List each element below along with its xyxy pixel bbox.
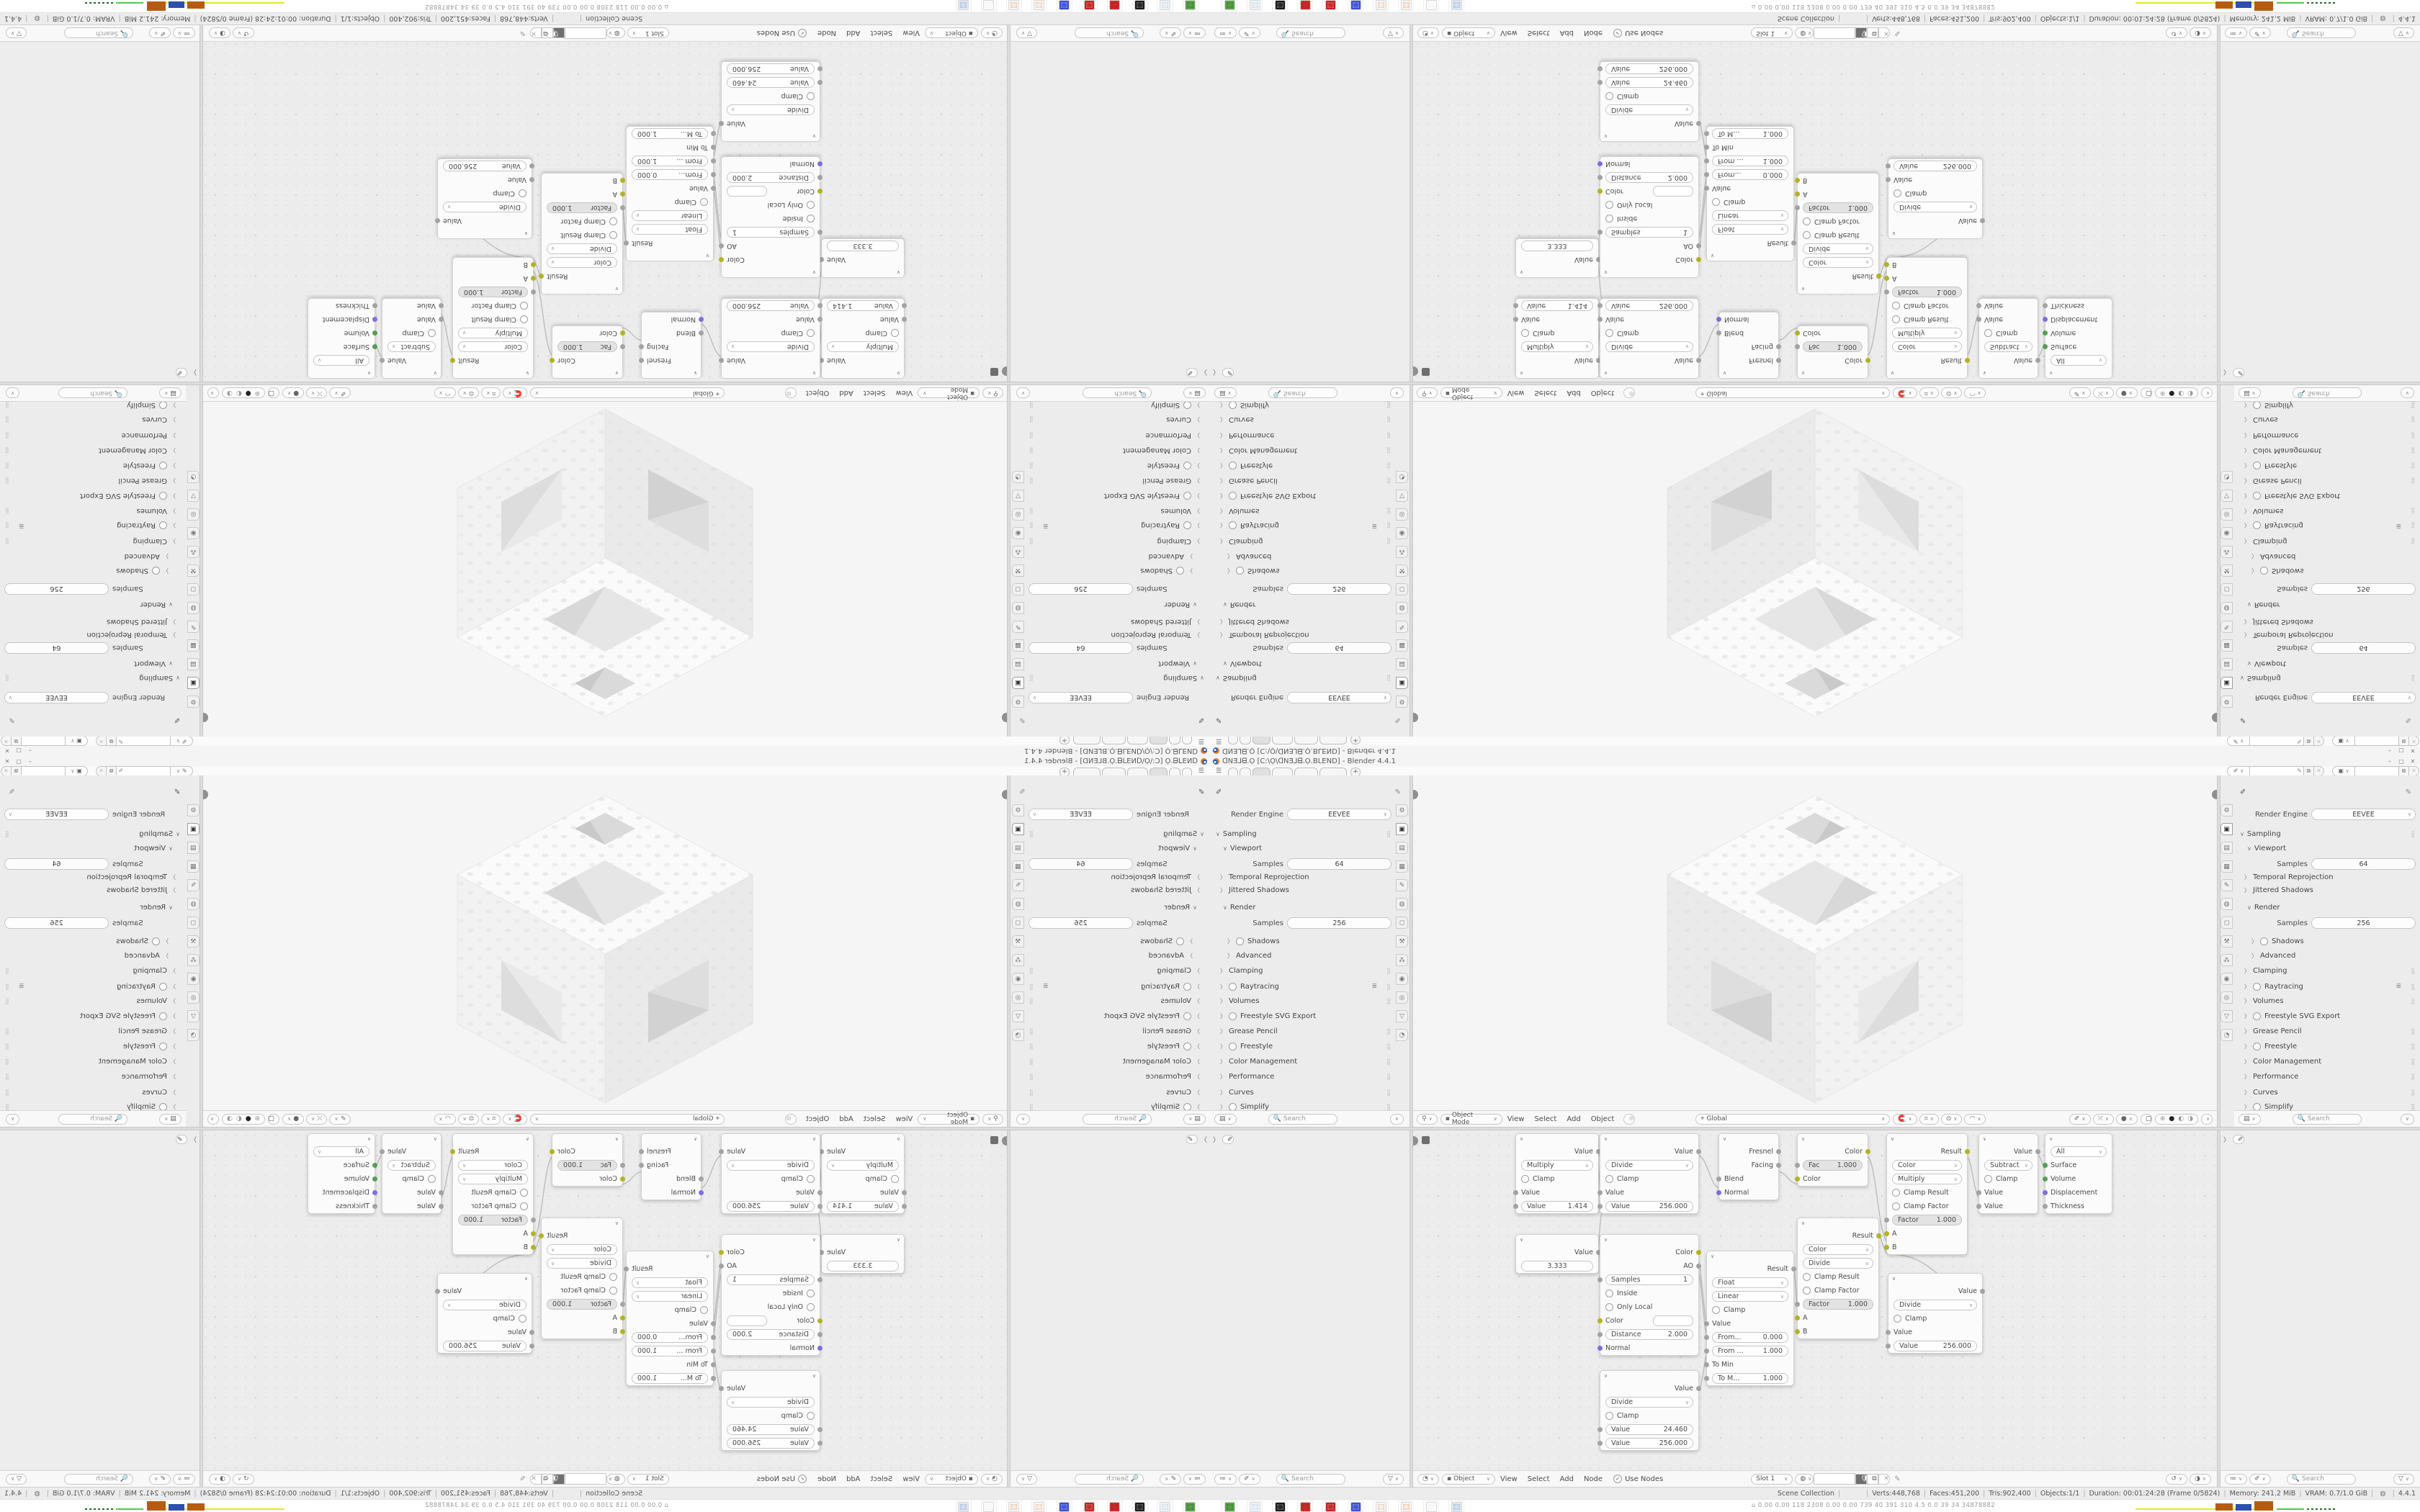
slot-select[interactable]: Slot 1∨: [1751, 28, 1793, 39]
input-socket[interactable]: [531, 263, 536, 268]
search-input[interactable]: 🔍Search: [64, 1474, 133, 1485]
node-checkbox-clamp[interactable]: Clamp: [1600, 1409, 1698, 1423]
output-socket[interactable]: [1696, 1149, 1701, 1154]
area-splitter[interactable]: [200, 1130, 203, 1487]
outliner-mode-button[interactable]: ≔∨: [2225, 1474, 2247, 1485]
output-socket[interactable]: [719, 258, 724, 263]
node-collapse-icon[interactable]: ∨: [1723, 370, 1726, 376]
node-enum-color[interactable]: Color∨: [458, 1160, 528, 1171]
output-tab-icon[interactable]: ▤: [2220, 842, 2233, 854]
properties-row-advanced[interactable]: 〉Advanced: [1210, 551, 1396, 562]
node-checkbox-clamp-result[interactable]: Clamp Result: [1798, 228, 1878, 242]
shader-node-editor[interactable]: ∨ValueMultiply∨ClampValueValue1.414∨Valu…: [203, 25, 1007, 382]
shading-mode-1[interactable]: ●: [2169, 390, 2174, 397]
viewport-menu-select[interactable]: Select: [1534, 390, 1556, 397]
input-socket[interactable]: [1795, 179, 1800, 184]
node-collapse-icon[interactable]: ∨: [1801, 286, 1805, 292]
minimize-button[interactable]: –: [2385, 747, 2395, 755]
filter-button[interactable]: ▽∨: [1383, 28, 1404, 39]
node-header-tool-0[interactable]: ↺∨: [233, 28, 254, 39]
node-checkbox-clamp[interactable]: Clamp: [1888, 186, 1982, 200]
panel-collapse-handle-left[interactable]: [1002, 790, 1007, 799]
shader-node-ambient-occlusion[interactable]: ∨ColorAOSamples1InsideOnly LocalColorDis…: [721, 156, 820, 278]
constraints-tab-icon[interactable]: ◎: [2220, 508, 2233, 521]
filter-button[interactable]: ▽∨: [1383, 1474, 1404, 1485]
expand-chevron-icon[interactable]: 〉: [1201, 1135, 1207, 1144]
node-menu-select[interactable]: Select: [870, 30, 892, 37]
tool-tab-icon[interactable]: ⚙: [187, 696, 200, 708]
properties-row-advanced[interactable]: 〉Advanced: [0, 950, 186, 961]
brush-filter-button[interactable]: ✐∨: [1160, 1474, 1181, 1485]
modifiers-tab-icon[interactable]: ⚒: [2220, 564, 2233, 577]
particles-tab-icon[interactable]: ⁂: [187, 954, 200, 966]
copy-icon[interactable]: ⧉: [106, 766, 116, 776]
properties-row-shadows[interactable]: 〉Shadows: [2234, 935, 2420, 947]
snap-tool-1[interactable]: ⌗∨: [481, 1114, 501, 1125]
node-value-field[interactable]: Value24.460: [1605, 1424, 1693, 1435]
properties-row-clamping[interactable]: 〉Clamping⣿: [1210, 965, 1396, 976]
fake-user-button[interactable]: 🛡: [1855, 28, 1867, 39]
close-button[interactable]: ✕: [2408, 747, 2418, 755]
output-socket[interactable]: [435, 1289, 440, 1294]
color-swatch[interactable]: [727, 1315, 767, 1326]
snap-tool-1[interactable]: ⌗∨: [481, 388, 501, 399]
shading-mode-0[interactable]: ⊕: [255, 1115, 261, 1122]
node-collapse-icon[interactable]: ∨: [524, 1276, 528, 1282]
particles-tab-icon[interactable]: ⁂: [187, 546, 200, 558]
node-collapse-icon[interactable]: ∨: [1520, 269, 1523, 275]
output-socket[interactable]: [719, 1386, 724, 1391]
area-splitter[interactable]: [200, 775, 203, 1127]
taskbar-ghost-app-icon[interactable]: [981, 1500, 997, 1512]
unlink-icon[interactable]: ✕: [2409, 736, 2419, 746]
input-socket[interactable]: [1886, 1330, 1891, 1335]
editor-type-button[interactable]: ⚲∨: [982, 388, 1003, 399]
search-input[interactable]: 🔍Search: [58, 388, 127, 399]
modifiers-tab-icon[interactable]: ⚒: [1012, 564, 1024, 577]
tool-tab-icon[interactable]: ⚙: [1396, 804, 1408, 816]
shader-node-math-divide-a[interactable]: ∨ValueDivide∨ClampValueValue256.000: [721, 298, 820, 379]
output-socket[interactable]: [1776, 1149, 1781, 1154]
node-checkbox-clamp[interactable]: Clamp: [438, 1312, 532, 1326]
brush-icon[interactable]: ✐: [1222, 368, 1234, 377]
output-tab-icon[interactable]: ▤: [187, 842, 200, 854]
unlink-button[interactable]: ✕: [530, 28, 542, 39]
tool-tab-icon[interactable]: ⚙: [187, 804, 200, 816]
unlink-icon[interactable]: ✕: [96, 736, 106, 746]
collapse-button[interactable]: ∨: [6, 1114, 19, 1125]
properties-row-grease-pencil[interactable]: 〉Grease Pencil⣿: [1210, 1025, 1396, 1037]
properties-row-advanced[interactable]: 〉Advanced: [1024, 950, 1210, 961]
taskbar-ghost-app-icon[interactable]: [1423, 0, 1439, 12]
shader-node-math-multiply[interactable]: ∨ValueMultiply∨ClampValueValue1.414: [821, 298, 905, 379]
shading-dropdown[interactable]: ∨: [2201, 1114, 2213, 1125]
id-name-field[interactable]: [2355, 736, 2399, 746]
node-value-field[interactable]: Value256.000: [727, 300, 815, 311]
shader-node-math-multiply[interactable]: ∨ValueMultiply∨ClampValueValue1.414: [821, 1133, 905, 1214]
panel-collapse-handle-left[interactable]: [1413, 790, 1418, 799]
output-socket[interactable]: [550, 359, 555, 364]
node-value-field[interactable]: Factor1.000: [458, 287, 528, 297]
node-checkbox-only-local[interactable]: Only Local: [1600, 1300, 1698, 1314]
taskbar-firefox-app-icon[interactable]: [1398, 1500, 1414, 1512]
properties-row-color-management[interactable]: 〉Color Management⣿: [1024, 1056, 1210, 1067]
node-value-field[interactable]: To M...1.000: [632, 128, 708, 139]
node-collapse-icon[interactable]: ∨: [1983, 1136, 1986, 1142]
node-value-field[interactable]: From...0.000: [632, 1332, 708, 1343]
taskbar-red-gear-app-icon[interactable]: [1322, 1500, 1338, 1512]
samples-field[interactable]: 256: [4, 583, 109, 595]
input-socket[interactable]: [372, 318, 377, 323]
view-layer-tab-icon[interactable]: ▦: [187, 639, 200, 652]
node-checkbox-clamp-result[interactable]: Clamp Result: [1887, 1186, 1967, 1200]
node-value-field[interactable]: Distance2.000: [1605, 1329, 1693, 1340]
close-button[interactable]: ✕: [2408, 757, 2418, 765]
pin-icon[interactable]: ✎: [2297, 768, 2302, 774]
material-tab-icon[interactable]: ◔: [1396, 471, 1408, 483]
unlink-icon[interactable]: ✕: [2314, 736, 2324, 746]
input-socket[interactable]: [1795, 1302, 1800, 1307]
shading-mode-3[interactable]: ◑: [2187, 1115, 2193, 1122]
node-checkbox-inside[interactable]: Inside: [1600, 1287, 1698, 1300]
collapse-button[interactable]: ∨: [2401, 1114, 2414, 1125]
overlay-tool-2[interactable]: ●∨: [282, 1114, 304, 1125]
input-socket[interactable]: [1884, 1245, 1889, 1250]
input-socket[interactable]: [1597, 176, 1603, 181]
node-enum-divide[interactable]: Divide∨: [547, 243, 617, 254]
input-socket[interactable]: [439, 318, 444, 323]
taskbar-terminal-app-icon[interactable]: [1183, 0, 1198, 12]
copy-icon[interactable]: ⧉: [106, 736, 116, 746]
area-splitter-horizontal[interactable]: [0, 382, 1210, 385]
node-checkbox-inside[interactable]: Inside: [722, 212, 820, 225]
render-tab-icon[interactable]: ▣: [187, 823, 200, 835]
node-collapse-icon[interactable]: ∨: [897, 269, 900, 275]
search-input[interactable]: 🔍Search: [1083, 388, 1152, 399]
tool-tab-icon[interactable]: ⚙: [1012, 804, 1024, 816]
shading-mode-2[interactable]: ◐: [2178, 1115, 2184, 1122]
input-socket[interactable]: [620, 345, 625, 350]
tool-circle-icon[interactable]: ⊛: [785, 1114, 797, 1125]
node-collapse-icon[interactable]: ∨: [812, 133, 816, 139]
panel-collapse-handle-right[interactable]: [203, 713, 208, 722]
node-checkbox-clamp[interactable]: Clamp: [1707, 1303, 1793, 1317]
data-tab-icon[interactable]: ▽: [1396, 1010, 1408, 1022]
shader-node-math-subtract[interactable]: ∨ValueSubtract∨ClampValueValue: [1978, 1133, 2038, 1214]
taskbar-display-app-icon[interactable]: [956, 1500, 972, 1512]
input-socket[interactable]: [711, 1362, 716, 1367]
node-checkbox-clamp-result[interactable]: Clamp Result: [542, 1270, 622, 1284]
object-tab-icon[interactable]: ◻: [2220, 583, 2233, 595]
input-socket[interactable]: [817, 1190, 823, 1195]
input-socket[interactable]: [1704, 1362, 1709, 1367]
search-input[interactable]: 🔍Search: [1075, 28, 1144, 39]
node-checkbox-clamp[interactable]: Clamp: [627, 1303, 713, 1317]
properties-row-volumes[interactable]: 〉Volumes⣿: [1210, 505, 1396, 517]
object-tab-icon[interactable]: ◻: [1396, 917, 1408, 929]
node-enum-multiply[interactable]: Multiply∨: [1892, 1174, 1962, 1184]
image-icon[interactable]: ▣ ∨: [65, 736, 88, 746]
shader-node-material-output[interactable]: ∨All∨SurfaceVolumeDisplacementThickness: [2045, 298, 2112, 379]
node-value-field[interactable]: Value24.460: [1605, 77, 1693, 88]
taskbar-firefox-app-icon[interactable]: [1398, 0, 1414, 12]
node-enum-linear[interactable]: Linear∨: [1712, 210, 1788, 221]
node-enum-float[interactable]: Float∨: [632, 1277, 708, 1288]
node-menu-view[interactable]: View: [902, 30, 920, 37]
properties-row-volumes[interactable]: 〉Volumes⣿: [2234, 995, 2420, 1007]
physics-tab-icon[interactable]: ◉: [1396, 527, 1408, 539]
properties-row-volumes[interactable]: 〉Volumes⣿: [0, 505, 186, 517]
constraints-tab-icon[interactable]: ◎: [2220, 991, 2233, 1004]
node-enum-divide[interactable]: Divide∨: [1803, 1258, 1873, 1269]
input-socket[interactable]: [711, 1335, 716, 1340]
node-menu-add[interactable]: Add: [1560, 30, 1574, 37]
shader-node-map-range[interactable]: ∨ResultFloat∨Linear∨ClampValueFrom...0.0…: [626, 1251, 714, 1386]
properties-row-performance[interactable]: 〉Performance⣿: [1210, 430, 1396, 441]
node-collapse-icon[interactable]: ∨: [1723, 1136, 1726, 1142]
pin-icon[interactable]: ✎: [118, 738, 123, 744]
node-checkbox-clamp[interactable]: Clamp: [438, 186, 532, 200]
input-socket[interactable]: [1884, 290, 1889, 295]
input-socket[interactable]: [439, 1204, 444, 1209]
outliner-mode-button[interactable]: ≔∨: [1183, 1474, 1206, 1485]
scene-tab-icon[interactable]: ✎: [187, 621, 200, 633]
viewport-menu-object[interactable]: Object: [806, 390, 830, 397]
transform-orientation-select[interactable]: ⌖ Global∨: [530, 1114, 725, 1125]
output-socket[interactable]: [719, 1264, 724, 1269]
node-collapse-icon[interactable]: ∨: [812, 1237, 816, 1243]
browse-material-button[interactable]: ◍∨: [1795, 1474, 1814, 1485]
node-value-field[interactable]: 3.333: [827, 1261, 899, 1272]
material-tab-icon[interactable]: ◔: [187, 1029, 200, 1041]
shader-node-map-range[interactable]: ∨ResultFloat∨Linear∨ClampValueFrom...0.0…: [626, 126, 714, 261]
shader-node-mix-fac[interactable]: ∨ColorFac1.000Color: [1797, 1133, 1868, 1187]
snap-tool-3[interactable]: ◠∨: [1964, 1114, 1986, 1125]
output-socket[interactable]: [1876, 274, 1881, 279]
node-enum-color[interactable]: Color∨: [1803, 257, 1873, 268]
node-checkbox-clamp[interactable]: Clamp: [1516, 1172, 1598, 1186]
filter-button[interactable]: ▽∨: [2393, 1474, 2414, 1485]
taskbar-floppy-64-app-icon[interactable]: [1348, 1500, 1363, 1512]
properties-row-clamping[interactable]: 〉Clamping⣿: [1024, 965, 1210, 976]
editor-type-button[interactable]: ◔∨: [1417, 28, 1439, 39]
taskbar-red-badge-app-icon[interactable]: [1107, 0, 1123, 12]
search-input[interactable]: 🔍Search: [1268, 388, 1337, 399]
properties-row-freestyle-svg-export[interactable]: 〉Freestyle SVG Export: [1024, 490, 1210, 502]
properties-row-freestyle-svg-export[interactable]: 〉Freestyle SVG Export: [1210, 490, 1396, 502]
overlay-tool-1[interactable]: ⤫∨: [2093, 388, 2114, 399]
properties-row-clamping[interactable]: 〉Clamping⣿: [0, 536, 186, 547]
node-checkbox-only-local[interactable]: Only Local: [1600, 198, 1698, 212]
world-tab-icon[interactable]: ◍: [1012, 602, 1024, 614]
panel-collapse-handle-right[interactable]: [2212, 790, 2217, 799]
overlay-tool-0[interactable]: ✐∨: [2069, 1114, 2091, 1125]
taskbar-firefox-app-icon[interactable]: [1006, 1500, 1022, 1512]
output-socket[interactable]: [1696, 1264, 1701, 1269]
input-socket[interactable]: [1716, 1176, 1721, 1182]
shader-node-math-divide-a[interactable]: ∨ValueDivide∨ClampValueValue256.000: [1600, 1133, 1699, 1214]
input-socket[interactable]: [620, 192, 625, 197]
properties-row-raytracing[interactable]: 〉Raytracing≣⣿: [1024, 981, 1210, 992]
node-collapse-icon[interactable]: ∨: [897, 370, 900, 376]
properties-row-raytracing[interactable]: 〉Raytracing≣⣿: [0, 981, 186, 992]
workspace-tab[interactable]: [1127, 737, 1148, 744]
editor-type-button[interactable]: ▤∨: [2238, 1114, 2261, 1125]
viewport-toggle-icon[interactable]: ▢: [2141, 388, 2152, 399]
taskbar-notes-app-icon[interactable]: [1157, 1500, 1173, 1512]
shader-node-mix-color-multiply[interactable]: ∨ResultColor∨Multiply∨Clamp ResultClamp …: [1886, 1133, 1968, 1255]
brush-filter-button[interactable]: ✐∨: [1239, 28, 1260, 39]
constraints-tab-icon[interactable]: ◎: [1396, 991, 1408, 1004]
properties-row-freestyle-svg-export[interactable]: 〉Freestyle SVG Export: [2234, 1010, 2420, 1022]
expand-chevron-icon[interactable]: 〉: [190, 368, 197, 377]
world-tab-icon[interactable]: ◍: [187, 898, 200, 910]
node-collapse-icon[interactable]: ∨: [1520, 370, 1523, 376]
input-socket[interactable]: [699, 1176, 704, 1182]
shader-node-math-divide-c[interactable]: ∨ValueDivide∨ClampValue24.460Value256.00…: [721, 1370, 820, 1451]
shader-node-math-divide-b[interactable]: ∨ValueDivide∨ClampValueValue256.000: [437, 158, 532, 239]
input-socket[interactable]: [620, 206, 625, 211]
properties-row-shadows[interactable]: 〉Shadows: [1210, 565, 1396, 577]
shader-node-math-divide-b[interactable]: ∨ValueDivide∨ClampValueValue256.000: [1888, 1273, 1983, 1354]
node-enum-subtract[interactable]: Subtract∨: [1984, 341, 2033, 352]
output-socket[interactable]: [1696, 359, 1701, 364]
expand-chevron-icon[interactable]: 〉: [2223, 1135, 2230, 1144]
workspace-tab[interactable]: [1252, 768, 1270, 775]
maximize-button[interactable]: ▢: [14, 747, 24, 755]
workspace-tab[interactable]: [1073, 737, 1101, 744]
properties-row-freestyle[interactable]: 〉Freestyle⣿: [2234, 1040, 2420, 1052]
viewport-menu-view[interactable]: View: [896, 390, 913, 397]
panel-collapse-handle-right[interactable]: [2212, 713, 2217, 722]
output-socket[interactable]: [1696, 1386, 1701, 1391]
input-socket[interactable]: [1886, 1344, 1891, 1349]
view-layer-tab-icon[interactable]: ▦: [2220, 860, 2233, 873]
slot-select[interactable]: Slot 1∨: [627, 28, 669, 39]
outliner-mode-button[interactable]: ≔∨: [1183, 28, 1206, 39]
maximize-button[interactable]: ▢: [2396, 747, 2406, 755]
properties-row-curves[interactable]: 〉Curves⣿: [1210, 414, 1396, 426]
node-enum-color[interactable]: Color∨: [1803, 1244, 1873, 1255]
input-socket[interactable]: [2043, 304, 2048, 309]
input-socket[interactable]: [1976, 318, 1981, 323]
shading-mode-1[interactable]: ●: [246, 1115, 251, 1122]
samples-field[interactable]: 256: [2311, 917, 2416, 929]
properties-row-shadows[interactable]: 〉Shadows: [1024, 935, 1210, 947]
node-enum-color[interactable]: Color∨: [1892, 1160, 1962, 1171]
input-socket[interactable]: [817, 1277, 823, 1282]
node-checkbox-clamp[interactable]: Clamp: [1600, 1172, 1698, 1186]
node-header-tool-0[interactable]: ↺∨: [2166, 28, 2187, 39]
node-checkbox-clamp-result[interactable]: Clamp Result: [453, 312, 533, 326]
shader-node-fresnel[interactable]: ∨FresnelFacingBlendNormal: [641, 312, 702, 379]
taskbar-blender-app-icon[interactable]: [1031, 0, 1047, 12]
render engine-field[interactable]: EEVEE∨: [4, 692, 109, 703]
data-tab-icon[interactable]: ▽: [187, 1010, 200, 1022]
copy-material-button[interactable]: ⧉: [1867, 28, 1878, 39]
shading-mode-1[interactable]: ●: [246, 390, 251, 397]
node-checkbox-clamp[interactable]: Clamp: [1516, 326, 1598, 340]
input-socket[interactable]: [439, 304, 444, 309]
image-icon[interactable]: ▣ ∨: [65, 766, 88, 776]
node-collapse-icon[interactable]: ∨: [1892, 230, 1896, 236]
node-enum-divide[interactable]: Divide∨: [727, 104, 815, 115]
taskbar-notes-app-icon[interactable]: [1247, 1500, 1263, 1512]
node-checkbox-clamp[interactable]: Clamp: [1888, 1312, 1982, 1326]
samples-field[interactable]: 256: [2311, 583, 2416, 595]
shader-node-value[interactable]: ∨Value3.333: [1515, 1234, 1599, 1274]
properties-row-grease-pencil[interactable]: 〉Grease Pencil⣿: [1024, 1025, 1210, 1037]
node-collapse-icon[interactable]: ∨: [526, 1136, 529, 1142]
input-socket[interactable]: [711, 173, 716, 178]
shader-node-ambient-occlusion[interactable]: ∨ColorAOSamples1InsideOnly LocalColorDis…: [1600, 1234, 1699, 1356]
area-splitter[interactable]: [1007, 25, 1010, 382]
taskbar-red-badge-app-icon[interactable]: [1297, 0, 1313, 12]
input-socket[interactable]: [1513, 1204, 1518, 1209]
input-socket[interactable]: [2043, 1190, 2048, 1195]
image-icon[interactable]: ▣ ∨: [2332, 766, 2355, 776]
node-collapse-icon[interactable]: ∨: [1983, 370, 1986, 376]
input-socket[interactable]: [711, 159, 716, 164]
node-menu-add[interactable]: Add: [846, 1475, 860, 1483]
viewport-toggle-icon[interactable]: ▢: [268, 388, 279, 399]
pin-icon[interactable]: ✎: [1894, 1475, 1900, 1483]
id-name-field[interactable]: ✎: [2250, 736, 2304, 746]
node-enum-divide[interactable]: Divide∨: [1605, 1397, 1693, 1408]
properties-row-freestyle[interactable]: 〉Freestyle⣿: [1210, 1040, 1396, 1052]
input-socket[interactable]: [1597, 1277, 1603, 1282]
slot-select[interactable]: Slot 1∨: [627, 1474, 669, 1485]
input-socket[interactable]: [1795, 1176, 1800, 1182]
view-layer-tab-icon[interactable]: ▦: [187, 860, 200, 873]
shading-mode-2[interactable]: ◐: [236, 1115, 242, 1122]
taskbar-floppy-64-app-icon[interactable]: [1057, 1500, 1072, 1512]
node-value-field[interactable]: 3.333: [827, 240, 899, 251]
taskbar-floppy-64-app-icon[interactable]: [1348, 0, 1363, 12]
data-tab-icon[interactable]: ▽: [1396, 490, 1408, 502]
viewport-menu-view[interactable]: View: [896, 1115, 913, 1123]
view-layer-tab-icon[interactable]: ▦: [1396, 860, 1408, 873]
node-enum-divide[interactable]: Divide∨: [727, 1397, 815, 1408]
input-socket[interactable]: [1513, 1190, 1518, 1195]
output-socket[interactable]: [380, 1149, 385, 1154]
snap-tool-2[interactable]: ⊙∨: [1941, 388, 1963, 399]
particles-tab-icon[interactable]: ⁂: [1012, 546, 1024, 558]
world-tab-icon[interactable]: ◍: [2220, 898, 2233, 910]
panel-collapse-handle-left[interactable]: [1002, 713, 1007, 722]
node-menu-select[interactable]: Select: [870, 1475, 892, 1483]
node-enum-color[interactable]: Color∨: [1892, 341, 1962, 352]
view-layer-tab-icon[interactable]: ▦: [2220, 639, 2233, 652]
node-collapse-icon[interactable]: ∨: [694, 1136, 697, 1142]
search-input[interactable]: 🔍Search: [64, 28, 133, 39]
fake-user-button[interactable]: 🛡: [1855, 1474, 1867, 1485]
node-collapse-icon[interactable]: ∨: [897, 1237, 900, 1243]
taskbar-red-badge-app-icon[interactable]: [1107, 1500, 1123, 1512]
output-socket[interactable]: [1865, 359, 1870, 364]
tool-tab-icon[interactable]: ⚙: [1012, 696, 1024, 708]
minimize-button[interactable]: –: [25, 747, 35, 755]
input-socket[interactable]: [817, 162, 823, 167]
node-menu-view[interactable]: View: [902, 1475, 920, 1483]
output-socket[interactable]: [639, 1149, 644, 1154]
search-input[interactable]: 🔍Search: [2293, 1114, 2362, 1125]
outliner-mode-button[interactable]: ≔∨: [173, 28, 195, 39]
node-enum-all[interactable]: All∨: [2051, 1146, 2107, 1157]
panel-collapse-handle-left[interactable]: [1002, 1136, 1007, 1146]
input-socket[interactable]: [699, 1190, 704, 1195]
node-value-field[interactable]: Fac1.000: [557, 1160, 617, 1171]
